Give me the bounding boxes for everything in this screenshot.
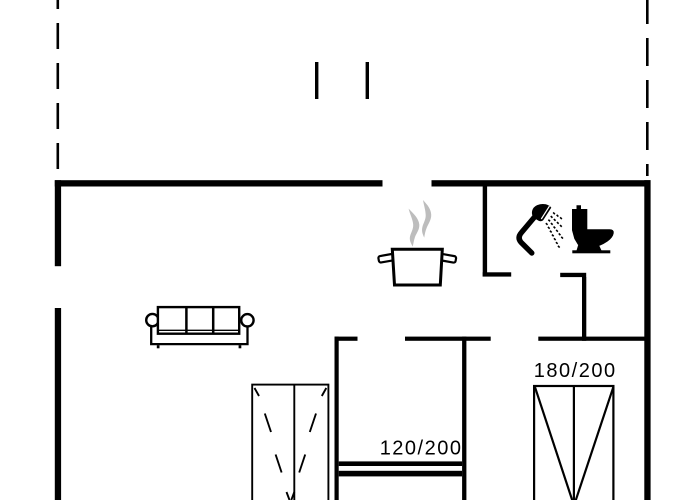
svg-text:180/200: 180/200 [534,360,617,382]
svg-text:120/200: 120/200 [380,438,463,460]
